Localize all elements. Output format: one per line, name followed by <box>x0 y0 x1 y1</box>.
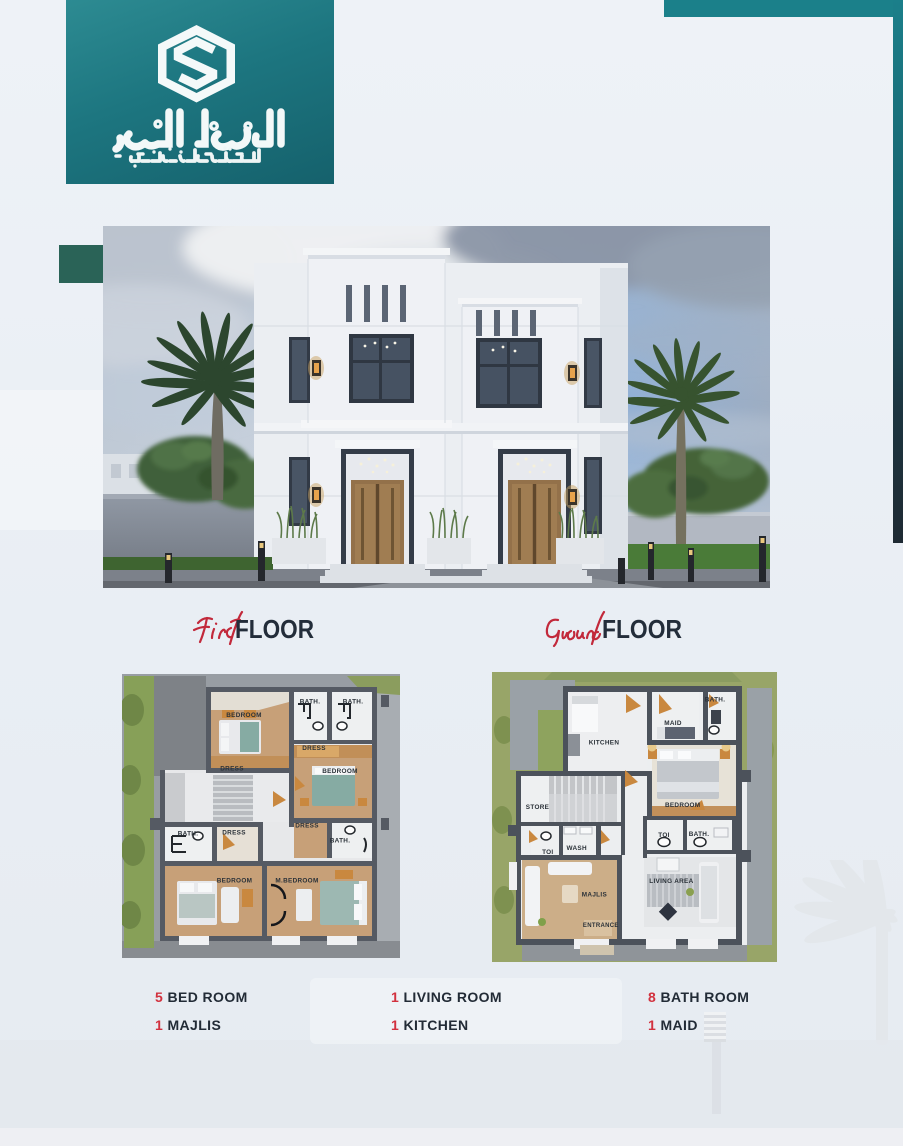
svg-text:BATH.: BATH. <box>178 831 199 838</box>
svg-text:BEDROOM: BEDROOM <box>226 712 261 719</box>
svg-text:MAID: MAID <box>664 720 682 727</box>
svg-text:BATH.: BATH. <box>300 699 321 706</box>
svg-text:TOI: TOI <box>542 849 553 856</box>
svg-text:LIVING AREA: LIVING AREA <box>649 878 693 885</box>
svg-text:DRESS: DRESS <box>220 766 244 773</box>
svg-text:BEDROOM: BEDROOM <box>217 878 252 885</box>
svg-text:ENTRANCE: ENTRANCE <box>583 923 619 929</box>
svg-text:TOI: TOI <box>658 832 669 839</box>
svg-text:STORE: STORE <box>526 804 550 811</box>
svg-text:BATH.: BATH. <box>343 699 364 706</box>
svg-text:DRESS: DRESS <box>222 830 246 837</box>
svg-text:BATH.: BATH. <box>330 838 351 845</box>
svg-text:WASH: WASH <box>567 845 587 852</box>
svg-text:M.BEDROOM: M.BEDROOM <box>275 878 318 885</box>
svg-text:BATH.: BATH. <box>689 831 710 838</box>
svg-text:BATH.: BATH. <box>705 697 726 704</box>
svg-text:KITCHEN: KITCHEN <box>589 740 620 747</box>
svg-text:FLOOR: FLOOR <box>602 614 682 644</box>
svg-text:BEDROOM: BEDROOM <box>322 768 357 775</box>
svg-text:DRESS: DRESS <box>295 823 319 830</box>
svg-text:DRESS: DRESS <box>302 745 326 752</box>
svg-text:BEDROOM: BEDROOM <box>665 802 700 809</box>
svg-text:MAJLIS: MAJLIS <box>582 892 608 899</box>
svg-text:FLOOR: FLOOR <box>235 614 314 644</box>
